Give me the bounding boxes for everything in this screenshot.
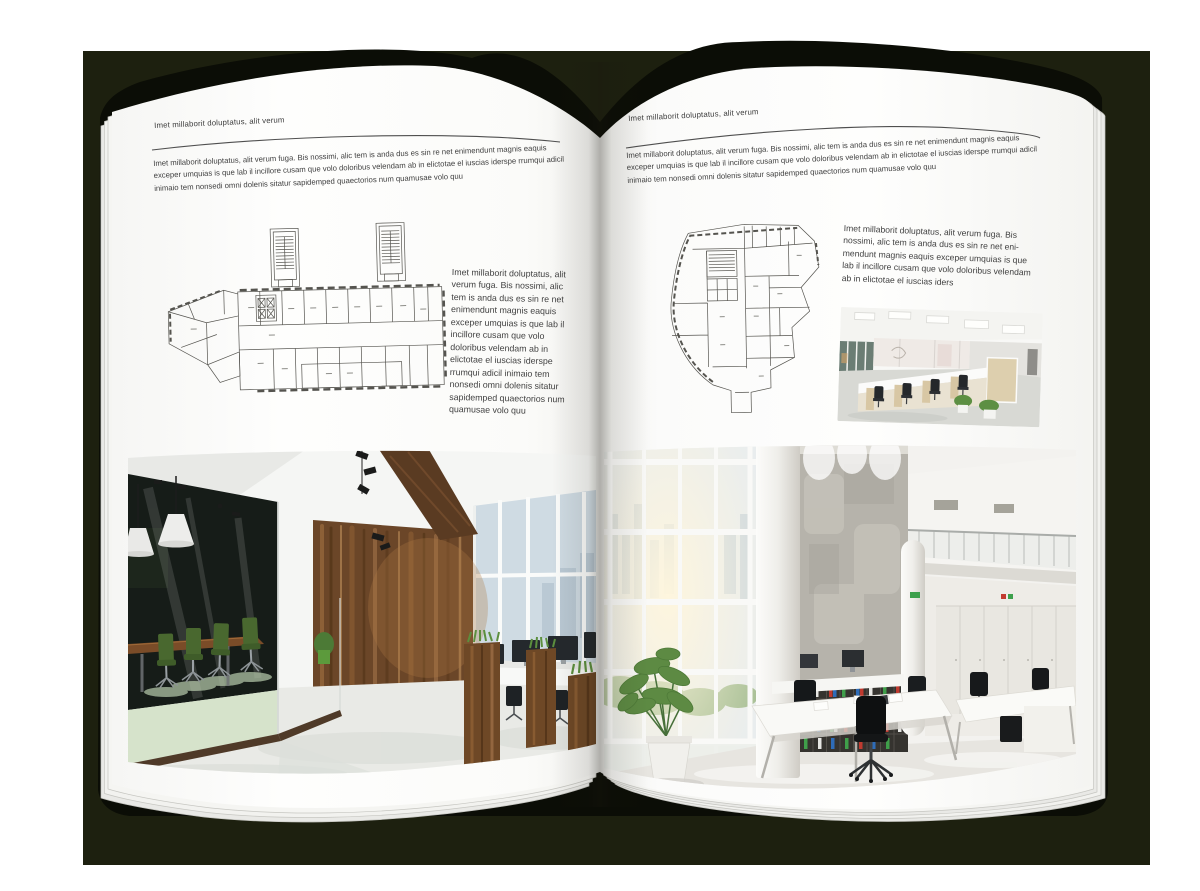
left-floorplan-side-text: Imet millaborit doluptatus, alit verum f… [449,266,576,418]
right-floorplan-drawing [648,215,841,420]
exit-sign [910,592,920,598]
waste-bin [1000,716,1022,742]
left-floorplan-drawing [158,218,451,415]
right-office-photo-small [837,307,1042,427]
right-office-photo-large [604,444,1076,792]
corridor-door [1027,349,1038,375]
stage: Imet millaborit doluptatus, alit verum I… [0,0,1200,891]
ac-grille [934,500,958,510]
window-wall [604,444,758,778]
concrete-wall [800,444,908,682]
mezzanine-balcony [908,456,1076,584]
safety-sign-green [1008,594,1013,599]
left-office-photo [128,448,596,778]
back-wall [873,338,970,369]
right-photo-caption: Imet millaborit doluptatus, alit verum f… [842,222,1042,292]
safety-sign-red [1001,594,1006,599]
